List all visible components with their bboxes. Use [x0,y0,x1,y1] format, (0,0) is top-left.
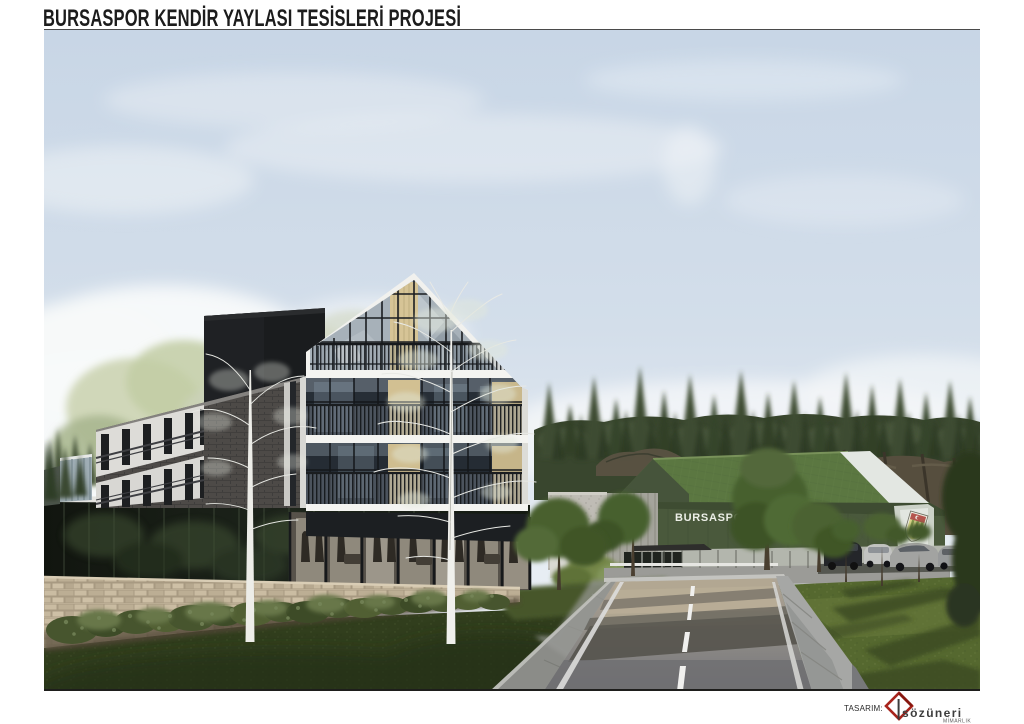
svg-text:MİMARLIK: MİMARLIK [943,718,971,724]
